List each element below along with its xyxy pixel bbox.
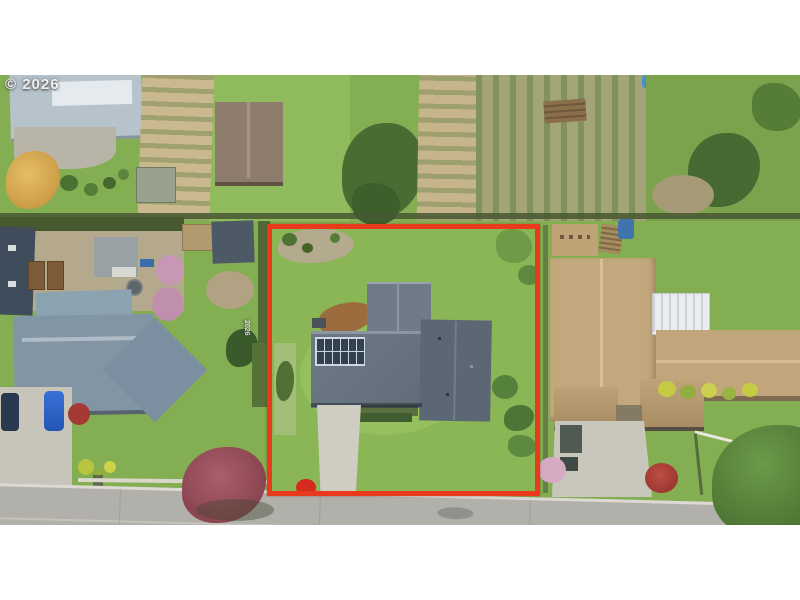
brown-roof-ridge: [247, 102, 250, 178]
yellow-bush: [742, 383, 758, 397]
lamp-post: [694, 433, 703, 495]
dark-shed-roof: [211, 220, 254, 263]
shrub: [103, 177, 116, 189]
raised-bed: [47, 261, 64, 290]
dirt-patch: [206, 271, 254, 309]
blue-car: [44, 391, 64, 431]
yellow-bush: [104, 461, 116, 473]
navy-roof-window: [8, 245, 16, 251]
right-shed-roof: [552, 224, 598, 256]
green-bush: [680, 385, 696, 399]
wood-steps: [543, 99, 586, 124]
shrub: [118, 169, 129, 180]
side-hedge: [252, 343, 268, 407]
copyright-watermark: © 2026: [5, 76, 60, 93]
yellow-bush: [78, 459, 94, 475]
pink-tree: [156, 255, 184, 285]
side-copyright-watermark: 2026: [243, 320, 250, 336]
gold-tree: [6, 151, 60, 209]
pink-bush: [538, 457, 566, 483]
greenhouse-ribs: [653, 294, 707, 332]
property-boundary: [267, 224, 540, 496]
pink-tree: [152, 287, 184, 321]
aerial-photo: © 2026 2026: [0, 75, 800, 525]
garden-beds: [476, 75, 646, 221]
yellow-bush: [658, 381, 676, 397]
side-fence: [543, 225, 548, 493]
raised-bed: [28, 261, 45, 290]
screenshot-canvas: © 2026 2026: [0, 0, 800, 600]
patio-chairs: [140, 259, 154, 267]
patio-table: [112, 267, 136, 277]
street-seam: [529, 500, 531, 525]
shed-vents: [560, 235, 590, 239]
red-bush: [645, 463, 678, 493]
yellow-bush: [701, 383, 717, 398]
garden-shed: [136, 167, 176, 203]
dirt-patch: [652, 175, 714, 215]
blue-tarp: [618, 219, 634, 239]
top-left-house-ridge: [52, 80, 133, 106]
tan-shed: [182, 224, 214, 251]
navy-car: [1, 393, 19, 431]
street-shadow-patch: [437, 507, 473, 520]
tree-cluster: [752, 83, 800, 131]
street-seam: [319, 495, 321, 525]
shrub: [60, 175, 78, 191]
maple-tree-shadow: [196, 499, 274, 521]
shrub: [84, 183, 98, 196]
navy-roof-window: [8, 281, 16, 287]
dark-bins: [560, 425, 582, 453]
green-bush: [722, 387, 736, 400]
red-bush: [68, 403, 90, 425]
right-wing-ridge: [656, 360, 800, 363]
garden-path-center: [417, 75, 480, 222]
